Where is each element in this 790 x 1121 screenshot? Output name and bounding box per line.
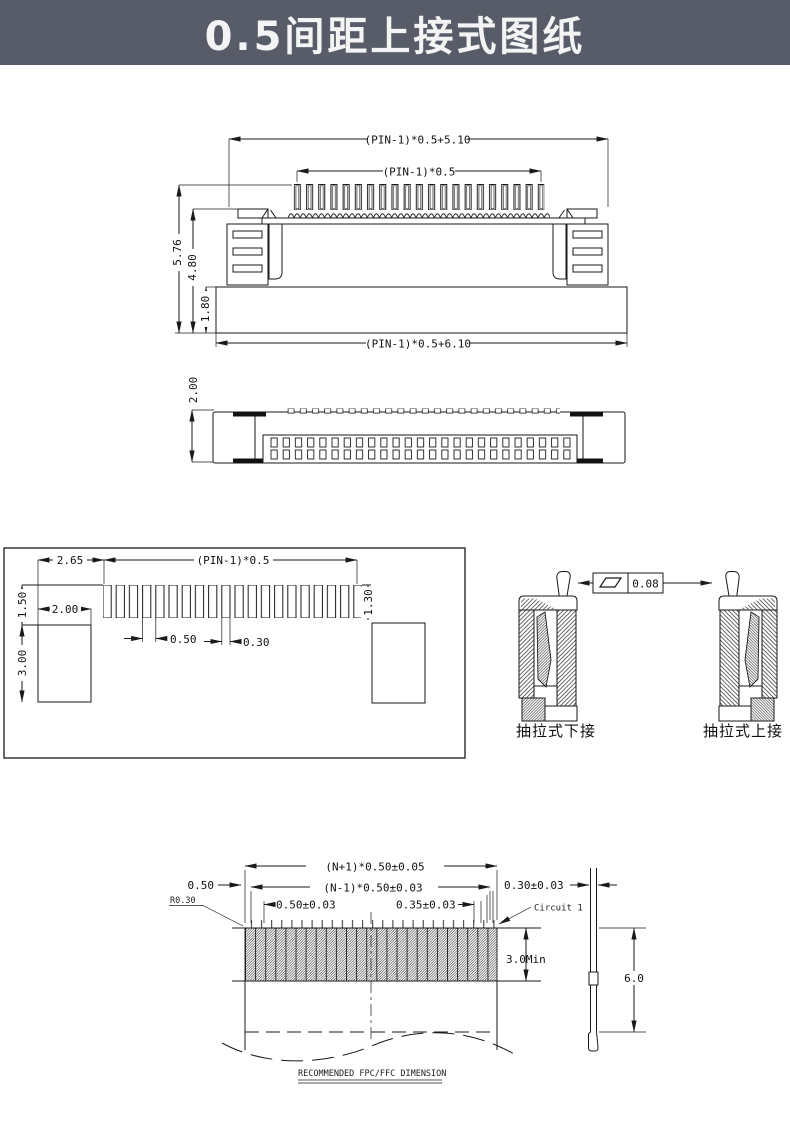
fitting-nail bbox=[570, 412, 603, 417]
dim-conductor-span-label: (N-1)*0.50±0.03 bbox=[323, 882, 422, 895]
pin-tail-ticks bbox=[285, 409, 560, 414]
dim-span-label: (PIN-1)*0.5 bbox=[197, 554, 270, 567]
dim-anchor-height-label: 3.00 bbox=[16, 650, 29, 677]
dim-height-base: 1.80 bbox=[198, 287, 216, 333]
dim-overall-length-label: 6.0 bbox=[624, 972, 644, 985]
dim-thickness: 2.00 bbox=[187, 377, 214, 462]
dim-height-total-label: 5.76 bbox=[171, 239, 184, 266]
break-line bbox=[222, 1033, 514, 1061]
fitting-nail bbox=[233, 459, 266, 464]
anchor-pad-left bbox=[38, 625, 91, 702]
flatness-callout: 0.08 bbox=[578, 573, 712, 593]
anchor-pad-right bbox=[372, 623, 425, 703]
page-title: 0.5间距上接式图纸 bbox=[205, 4, 586, 62]
dim-contact-min-label: 3.0Min bbox=[506, 953, 546, 966]
circuit1-callout: Circuit 1 bbox=[499, 904, 583, 925]
dim-overall-length: 6.0 bbox=[599, 928, 649, 1032]
dim-pad-len-right: 1.30 bbox=[361, 585, 375, 620]
label-upper-contact: 抽拉式上接 bbox=[703, 722, 783, 740]
circuit1-label: Circuit 1 bbox=[534, 904, 583, 914]
dim-fpc-pitch: 0.50±0.03 bbox=[264, 899, 336, 924]
dim-pad-width-label: 0.30 bbox=[243, 636, 270, 649]
cross-sections: 0.08 抽拉式下接 抽拉式上接 bbox=[516, 572, 783, 741]
dim-conductor-width-label: 0.35±0.03 bbox=[396, 899, 456, 912]
dim-pin-span-label: (PIN-1)*0.5 bbox=[383, 166, 456, 179]
dim-pad-len-left: 1.50 bbox=[15, 585, 29, 625]
section-lower-contact bbox=[519, 572, 577, 722]
dim-pin-span: (PIN-1)*0.5 bbox=[297, 164, 541, 182]
corner-radius-callout: R0.30 bbox=[169, 896, 243, 926]
flatness-value: 0.08 bbox=[632, 578, 659, 591]
contact-bump-row bbox=[288, 208, 550, 218]
dim-edge-margin: 0.50 bbox=[188, 879, 242, 892]
dim-fpc-thickness-label: 0.30±0.03 bbox=[504, 879, 564, 892]
dim-top-width-label: (PIN-1)*0.5+5.10 bbox=[365, 134, 471, 147]
base-block bbox=[216, 287, 627, 333]
housing-top-plate bbox=[262, 218, 585, 224]
corner-radius-label: R0.30 bbox=[170, 896, 196, 906]
dim-overall-width-label: (N+1)*0.50±0.05 bbox=[325, 861, 424, 874]
land-pattern: 2.65 (PIN-1)*0.5 1.50 3.00 bbox=[4, 548, 465, 758]
fpc-side-profile bbox=[589, 868, 599, 1051]
pad-row bbox=[103, 585, 362, 618]
front-view: (PIN-1)*0.5+5.10 (PIN-1)*0.5 bbox=[170, 131, 627, 351]
dim-fpc-pitch-label: 0.50±0.03 bbox=[276, 899, 336, 912]
label-lower-contact: 抽拉式下接 bbox=[516, 722, 596, 740]
fitting-nail bbox=[233, 412, 266, 417]
dim-offset-label: 2.65 bbox=[57, 554, 84, 567]
dim-fpc-thickness: 0.30±0.03 bbox=[504, 879, 617, 892]
dim-pitch-label: 0.50 bbox=[170, 633, 197, 646]
title-banner: 0.5间距上接式图纸 bbox=[0, 0, 790, 65]
dim-bottom-width: (PIN-1)*0.5+6.10 bbox=[216, 333, 627, 351]
dim-height-upper-label: 4.80 bbox=[186, 254, 199, 281]
dim-anchor-width-label: 2.00 bbox=[52, 603, 79, 616]
dim-height-base-label: 1.80 bbox=[199, 296, 212, 323]
fpc-view: (N+1)*0.50±0.05 (N-1)*0.50±0.03 0.50 R0.… bbox=[169, 859, 649, 1083]
dim-thickness-label: 2.00 bbox=[187, 377, 200, 404]
top-view: 2.00 bbox=[187, 377, 625, 463]
pin-comb bbox=[294, 184, 545, 210]
dim-pad-len-left-label: 1.50 bbox=[16, 592, 29, 619]
fpc-note-label: RECOMMENDED FPC/FFC DIMENSION bbox=[298, 1069, 446, 1079]
dim-contact-min: 3.0Min bbox=[506, 928, 546, 981]
contact-comb bbox=[268, 437, 572, 462]
drawing-page: 0.5间距上接式图纸 bbox=[0, 0, 790, 1121]
technical-drawing: (PIN-1)*0.5+5.10 (PIN-1)*0.5 bbox=[0, 65, 790, 1121]
dim-bottom-width-label: (PIN-1)*0.5+6.10 bbox=[365, 338, 471, 351]
section-upper-contact bbox=[719, 572, 777, 722]
dim-conductor-width: 0.35±0.03 bbox=[396, 891, 493, 923]
fpc-note: RECOMMENDED FPC/FFC DIMENSION bbox=[298, 1069, 446, 1083]
dim-pad-len-right-label: 1.30 bbox=[362, 589, 375, 616]
dim-edge-margin-label: 0.50 bbox=[188, 879, 215, 892]
